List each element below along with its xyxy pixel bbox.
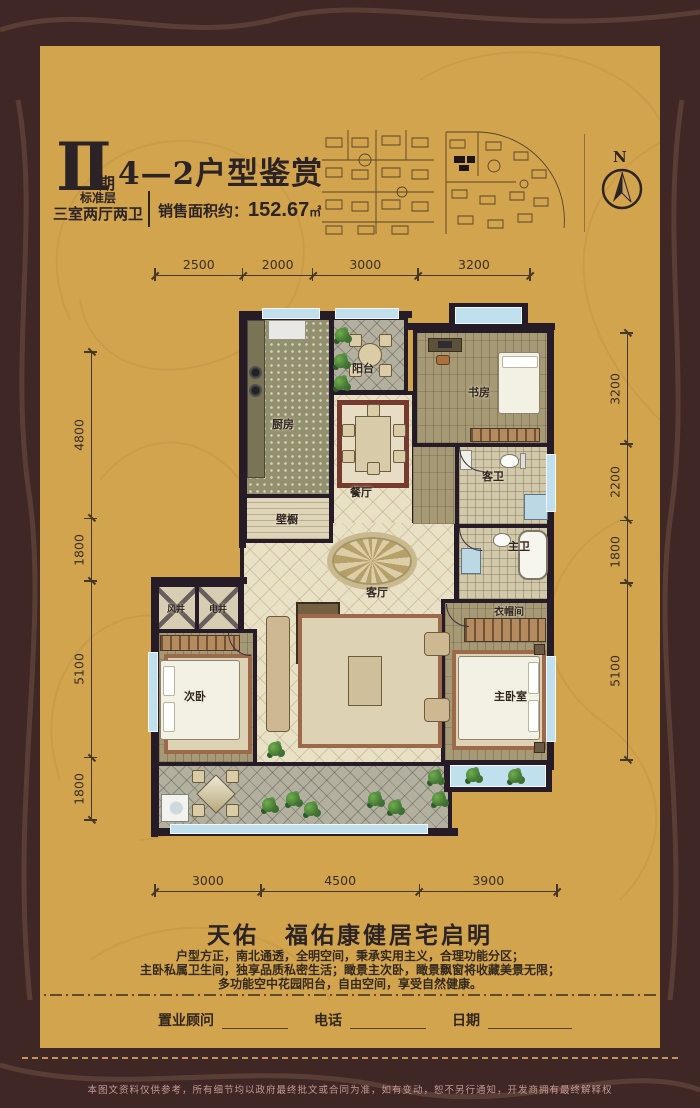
label-balcony-top: 阳台 [352, 360, 374, 376]
disclaimer: 本图文资料仅供参考，所有细节均以政府最终批文或合同为准，如有变动，恕不另行通知，… [0, 1082, 700, 1096]
site-plan [318, 126, 568, 240]
balcony-window [335, 308, 399, 319]
balcony-plant-icon [334, 354, 348, 368]
master-bay-window [450, 765, 546, 787]
garden-plant-icon [388, 800, 402, 814]
living-ceiling-medallion [327, 532, 417, 590]
floor-layout-block: 标准层 三室两厅两卫 [52, 192, 144, 223]
frame-top [0, 0, 700, 46]
floorplan-poster: Ⅱ 期 4—2户型鉴赏 标准层 三室两厅两卫 销售面积约：152.67㎡ N [0, 0, 700, 1108]
dim-segment: 4800 [66, 352, 92, 518]
label-guest-bath: 客卫 [482, 468, 504, 484]
wall-left-a [239, 311, 246, 548]
label-study: 书房 [468, 384, 490, 400]
dimension-chain-right: 3200 2200 1800 5100 [602, 333, 628, 760]
master-bedroom-window [546, 656, 556, 742]
page-title: 4—2户型鉴赏 [118, 148, 323, 193]
dining-chair [342, 424, 355, 437]
dim-segment: 3200 [602, 333, 628, 444]
garden-chair [226, 804, 239, 817]
date-blank-line [488, 1014, 572, 1029]
hallway-floor [413, 444, 458, 524]
nightstand [534, 742, 545, 753]
study-bay-window [455, 307, 522, 324]
dim-segment: 2500 [155, 250, 243, 276]
balcony-plant-icon [334, 376, 348, 390]
area-label: 销售面积约： [158, 203, 248, 220]
label-kitchen: 厨房 [272, 416, 294, 432]
bay-plant-icon [508, 769, 522, 783]
garden-plant-icon [368, 792, 382, 806]
armchair [424, 632, 450, 656]
dim-segment: 1800 [66, 758, 92, 820]
siteplan-compass-divider [584, 134, 585, 232]
dining-chair [393, 424, 406, 437]
cloakroom-wardrobe [464, 618, 546, 642]
phone-blank-line [350, 1014, 426, 1029]
pillow [528, 700, 539, 732]
dining-chair [367, 462, 380, 475]
dining-chair [342, 450, 355, 463]
phone-label: 电话 [314, 1010, 342, 1030]
compass-icon [599, 166, 645, 212]
bath-sink [524, 494, 548, 520]
dimension-chain-top: 2500 2000 3000 3200 [155, 250, 530, 276]
bottom-frame-bead-line [22, 1057, 678, 1059]
dining-chair [393, 450, 406, 463]
study-shelf [470, 428, 540, 442]
bath-sink [461, 548, 481, 574]
bay-plant-icon [466, 768, 480, 782]
stove-burner-icon [249, 384, 262, 397]
balcony-chair [379, 334, 392, 347]
label-dining: 餐厅 [350, 484, 372, 500]
balcony-chair [349, 334, 362, 347]
kitchen-counter [247, 320, 265, 478]
armchair [424, 698, 450, 722]
label-master-bath: 主卫 [508, 538, 530, 554]
label-wind-shaft: 风井 [167, 602, 185, 615]
dim-segment: 3000 [155, 866, 261, 892]
description-line: 多功能空中花园阳台，自由空间，享受自然健康。 [0, 977, 700, 991]
label-elec-shaft: 电井 [209, 602, 227, 615]
dim-segment: 4500 [261, 866, 420, 892]
floor-label: 标准层 [52, 192, 144, 206]
frame-left [0, 46, 40, 1048]
frame-right [660, 46, 700, 1048]
description-line: 主卧私属卫生间，独享品质私密生活；瞰景主次卧，瞰景飘窗将收藏美景无限； [0, 963, 700, 977]
wall-wing-top [151, 577, 247, 584]
living-plant-icon [268, 742, 282, 756]
pillow [163, 702, 175, 732]
header-divider [148, 191, 150, 227]
second-bedroom-window [148, 652, 158, 732]
desk-chair [436, 355, 450, 365]
dim-segment: 5100 [66, 581, 92, 758]
garden-chair [192, 770, 205, 783]
layout-label: 三室两厅两卫 [52, 206, 144, 223]
pillow [502, 356, 538, 368]
area-unit: ㎡ [309, 205, 321, 219]
guest-bath-window [546, 454, 556, 512]
washing-machine [161, 794, 189, 822]
garden-plant-icon [262, 798, 276, 812]
balcony-plant-icon [335, 328, 349, 342]
dim-segment: 5100 [602, 583, 628, 760]
consultant-label: 置业顾问 [158, 1010, 214, 1030]
label-closet: 壁橱 [276, 511, 298, 527]
label-cloakroom: 衣帽间 [494, 603, 524, 618]
dining-chair [367, 404, 380, 417]
dim-segment: 2000 [243, 250, 313, 276]
garden-chair [226, 770, 239, 783]
slogan: 天佑 福佑康健居宅启明 [0, 916, 700, 950]
pillow [528, 662, 539, 694]
label-living: 客厅 [366, 584, 388, 600]
label-master-bedroom: 主卧室 [494, 688, 527, 704]
pillow [163, 666, 175, 696]
sofa [266, 616, 290, 732]
garden-plant-icon [304, 802, 318, 816]
compass-north-label: N [613, 148, 627, 166]
nightstand [534, 644, 545, 655]
dim-segment: 3900 [419, 866, 557, 892]
contact-row: 置业顾问 电话 日期 [158, 1010, 598, 1030]
dim-segment: 3000 [313, 250, 418, 276]
toilet-tank [520, 453, 526, 469]
consultant-blank-line [222, 1014, 288, 1029]
dim-segment: 1800 [602, 520, 628, 582]
date-label: 日期 [452, 1010, 480, 1030]
balcony-chair [379, 364, 392, 377]
coffee-table [348, 656, 382, 706]
kitchen-sink [268, 320, 306, 340]
dimension-chain-bottom: 3000 4500 3900 [155, 866, 557, 892]
dimension-chain-left: 4800 1800 5100 1800 [66, 352, 92, 820]
site-plan-highlight [454, 156, 475, 171]
kitchen-window [262, 308, 320, 319]
garden-chair [192, 804, 205, 817]
desk-monitor-icon [438, 341, 452, 348]
garden-plant-icon [286, 792, 300, 806]
toilet-icon [500, 454, 519, 468]
bottom-balcony-window [170, 824, 428, 834]
description-line: 户型方正，南北通透，全明空间，秉承实用主义，合理功能分区； [0, 949, 700, 963]
area-value: 152.67 [248, 199, 309, 221]
sales-area-line: 销售面积约：152.67㎡ [158, 199, 321, 222]
garden-plant-icon [428, 770, 442, 784]
garden-plant-icon [432, 792, 446, 806]
label-second-bedroom: 次卧 [184, 688, 206, 704]
dim-segment: 1800 [66, 518, 92, 580]
dim-segment: 3200 [418, 250, 530, 276]
stove-burner-icon [249, 366, 262, 379]
dim-segment: 2200 [602, 444, 628, 520]
footer-divider [28, 994, 672, 996]
